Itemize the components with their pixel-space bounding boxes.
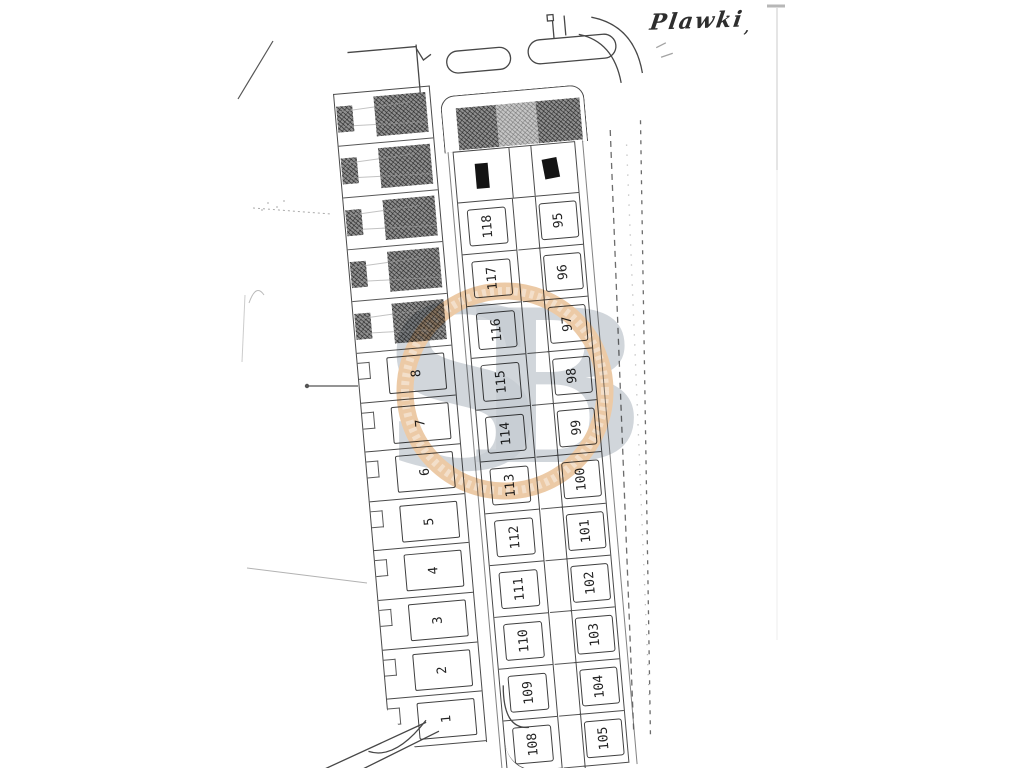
plot-boundary: 5 bbox=[399, 501, 460, 543]
plot-with-building bbox=[454, 148, 514, 203]
plot-100: 100 bbox=[556, 452, 605, 508]
plot-boundary: 114 bbox=[485, 414, 527, 454]
plot-8: 8 bbox=[357, 346, 456, 404]
plot-number-label: 98 bbox=[565, 367, 579, 384]
plot-boundary: 118 bbox=[467, 206, 509, 246]
plot-108: 108 bbox=[503, 717, 561, 768]
plot-boundary: 7 bbox=[391, 402, 452, 444]
plot-boundary: 109 bbox=[507, 673, 549, 713]
plot-95: 95 bbox=[534, 193, 583, 249]
hatched-building bbox=[382, 196, 437, 240]
plot-number-label: 102 bbox=[583, 571, 598, 596]
plot-with-building bbox=[530, 142, 578, 196]
plot-boundary: 1 bbox=[416, 698, 477, 740]
plot-6: 6 bbox=[365, 444, 464, 502]
plot-number-label: 4 bbox=[427, 566, 441, 575]
plot-boundary: 113 bbox=[489, 465, 531, 505]
plot-boundary: 97 bbox=[547, 304, 588, 344]
plot-102: 102 bbox=[565, 556, 614, 612]
plot-boundary: 115 bbox=[480, 362, 522, 402]
site-plan-map: 87654321 1181171161151141131121111101091… bbox=[0, 0, 1024, 768]
plot-number-label: 108 bbox=[525, 732, 540, 757]
plot-number-label: 105 bbox=[597, 726, 612, 751]
hatched-building bbox=[373, 92, 428, 136]
plot-114: 114 bbox=[476, 406, 534, 463]
plot-number-label: 6 bbox=[419, 468, 433, 477]
plot-7: 7 bbox=[361, 395, 460, 453]
plot-number-label: 115 bbox=[494, 370, 509, 395]
plot-number-label: 110 bbox=[516, 629, 531, 654]
plot-112: 112 bbox=[485, 510, 543, 567]
plot-number-label: 103 bbox=[588, 622, 603, 647]
scanned-site-plan-page: 87654321 1181171161151141131121111101091… bbox=[0, 0, 1024, 768]
plot-4: 4 bbox=[374, 543, 473, 601]
plot-boundary: 98 bbox=[552, 356, 593, 396]
plot-number-label: 7 bbox=[414, 418, 428, 427]
plot-boundary: 116 bbox=[476, 310, 518, 350]
plot-boundary: 102 bbox=[570, 563, 611, 603]
plot-117: 117 bbox=[463, 251, 521, 308]
plot-number-label: 101 bbox=[579, 519, 594, 544]
hatched-building-row bbox=[343, 190, 442, 250]
plot-99: 99 bbox=[552, 400, 601, 456]
plot-111: 111 bbox=[490, 561, 548, 618]
plot-number-label: 113 bbox=[503, 473, 518, 498]
plot-number-label: 111 bbox=[512, 577, 527, 602]
hatched-building bbox=[387, 247, 442, 291]
plot-number-label: 2 bbox=[436, 665, 450, 674]
hatched-building bbox=[378, 144, 433, 188]
plot-boundary: 100 bbox=[561, 459, 602, 499]
plot-98: 98 bbox=[547, 348, 596, 404]
plot-boundary: 96 bbox=[543, 252, 584, 292]
plot-number-label: 8 bbox=[410, 369, 424, 378]
strip-hatched-rows bbox=[334, 87, 451, 354]
plot-number-label: 100 bbox=[574, 467, 589, 492]
left-strip-plots: 87654321 bbox=[357, 346, 486, 750]
handwritten-note: Plawki, bbox=[648, 6, 752, 36]
plot-number-label: 114 bbox=[498, 421, 513, 446]
plot-110: 110 bbox=[494, 613, 552, 670]
plot-number-label: 3 bbox=[431, 616, 445, 625]
plot-boundary: 112 bbox=[494, 517, 536, 557]
plot-number-label: 96 bbox=[556, 264, 570, 281]
hatched-building-row bbox=[352, 294, 451, 354]
plot-boundary: 104 bbox=[579, 666, 620, 706]
plot-number-label: 116 bbox=[489, 318, 504, 343]
plot-boundary: 4 bbox=[403, 550, 464, 592]
plot-105: 105 bbox=[579, 711, 628, 767]
plot-boundary: 110 bbox=[503, 621, 545, 661]
plot-115: 115 bbox=[472, 354, 530, 411]
hatched-building bbox=[535, 98, 582, 144]
plot-number-label: 118 bbox=[480, 214, 495, 239]
plot-number-label: 1 bbox=[440, 715, 454, 724]
hatched-building bbox=[496, 101, 540, 146]
plot-109: 109 bbox=[499, 665, 557, 722]
plot-113: 113 bbox=[481, 458, 539, 515]
plot-number-label: 109 bbox=[521, 680, 536, 705]
plot-96: 96 bbox=[538, 245, 587, 301]
plot-number-label: 99 bbox=[570, 419, 584, 436]
hatched-building-row bbox=[348, 242, 447, 302]
hatched-building bbox=[392, 299, 447, 343]
plot-103: 103 bbox=[570, 607, 619, 663]
plot-1: 1 bbox=[387, 691, 486, 749]
plot-boundary: 95 bbox=[538, 200, 579, 240]
plot-boundary: 99 bbox=[556, 407, 597, 447]
plot-boundary: 3 bbox=[408, 599, 469, 641]
hatched-building-row bbox=[334, 87, 433, 147]
hatched-building-row bbox=[339, 138, 438, 198]
plot-number-label: 5 bbox=[423, 517, 437, 526]
plot-5: 5 bbox=[370, 494, 469, 552]
plot-boundary: 105 bbox=[584, 718, 625, 758]
plot-boundary: 117 bbox=[471, 258, 513, 298]
plot-boundary: 108 bbox=[512, 724, 554, 764]
plot-number-label: 117 bbox=[485, 266, 500, 291]
plot-118: 118 bbox=[458, 199, 516, 256]
plot-boundary: 2 bbox=[412, 649, 473, 691]
hatched-building bbox=[456, 105, 500, 150]
plot-104: 104 bbox=[575, 659, 624, 715]
plot-97: 97 bbox=[543, 297, 592, 353]
plot-boundary: 101 bbox=[566, 511, 607, 551]
building-footprint bbox=[475, 163, 490, 189]
plot-boundary: 8 bbox=[386, 352, 447, 394]
plot-number-label: 112 bbox=[507, 525, 522, 550]
handwritten-label: Plawki bbox=[648, 6, 745, 35]
plot-boundary: 6 bbox=[395, 451, 456, 493]
plot-number-label: 104 bbox=[592, 674, 607, 699]
plot-number-label: 95 bbox=[552, 212, 566, 229]
plot-boundary: 103 bbox=[575, 615, 616, 655]
plot-116: 116 bbox=[467, 302, 525, 359]
plot-2: 2 bbox=[383, 642, 482, 700]
plot-boundary: 111 bbox=[498, 569, 540, 609]
plot-number-label: 97 bbox=[561, 316, 575, 333]
plot-3: 3 bbox=[378, 593, 477, 651]
plot-101: 101 bbox=[561, 504, 610, 560]
building-footprint bbox=[542, 157, 561, 179]
